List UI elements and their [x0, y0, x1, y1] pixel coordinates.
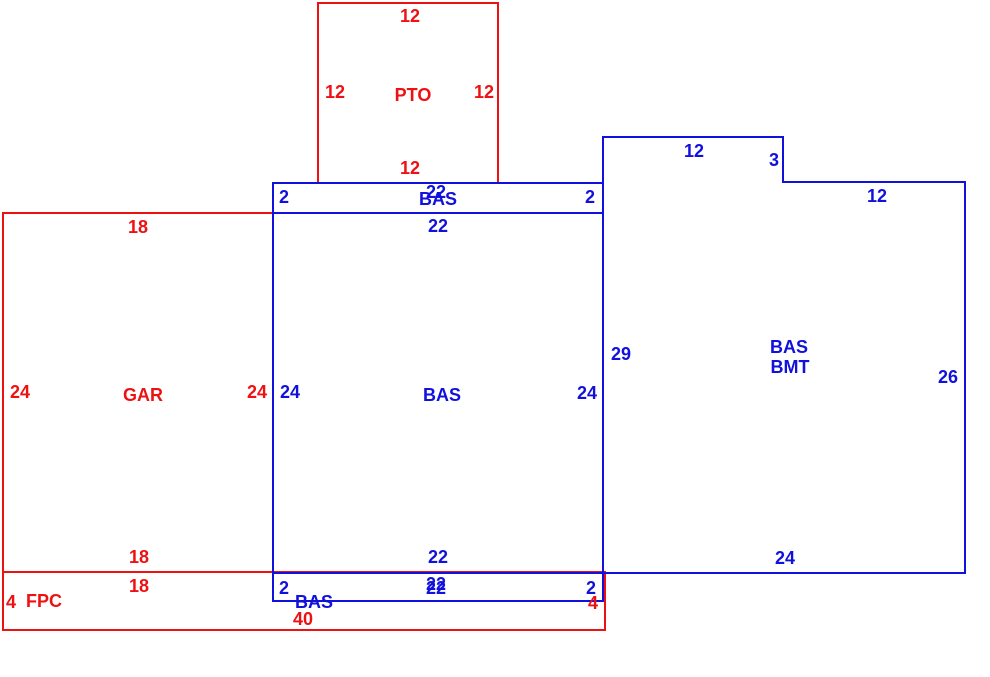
- dim-fpc-top-18: 18: [129, 577, 149, 595]
- dim-gar-top-18: 18: [128, 218, 148, 236]
- dim-pto-right-12: 12: [474, 83, 494, 101]
- dim-bmt-step-3: 3: [769, 151, 779, 169]
- dim-fpc-left-4: 4: [6, 593, 16, 611]
- dim-bmt-left-29: 29: [611, 345, 631, 363]
- dim-pto-bottom-12: 12: [400, 159, 420, 177]
- dim-strip-top-right-2: 2: [585, 188, 595, 206]
- dim-strip-bottom-left-2: 2: [279, 579, 289, 597]
- area-strip-bottom-bas: BAS: [295, 593, 333, 611]
- dim-bas-top-22: 22: [428, 217, 448, 235]
- dim-fpc-bottom-40: 40: [293, 610, 313, 628]
- dim-bmt-bottom-24: 24: [775, 549, 795, 567]
- dim-gar-left-24: 24: [10, 383, 30, 401]
- dim-gar-bottom-18: 18: [129, 548, 149, 566]
- dim-bas-bottom-22: 22: [428, 548, 448, 566]
- dim-gar-right-24: 24: [247, 383, 267, 401]
- dim-strip-top-left-2: 2: [279, 188, 289, 206]
- dim-pto-left-12: 12: [325, 83, 345, 101]
- dim-strip-bottom-right-2: 2: [586, 579, 596, 597]
- floor-plan-sketch: 1212PTO12121824GAR2418184FPC404222BAS222…: [0, 0, 990, 677]
- dim-bmt-top-12: 12: [684, 142, 704, 160]
- area-bmt-bmt-label: BMT: [771, 358, 810, 376]
- dim-bmt-right-26: 26: [938, 368, 958, 386]
- dim-bas-right-24: 24: [577, 384, 597, 402]
- dim-pto-top-12: 12: [400, 7, 420, 25]
- area-strip-top-bas: BAS: [419, 190, 457, 208]
- area-bas-label: BAS: [423, 386, 461, 404]
- dim-bmt-top2-12: 12: [867, 187, 887, 205]
- dim-bas-left-24: 24: [280, 383, 300, 401]
- area-bmt-bas-label: BAS: [770, 338, 808, 356]
- area-fpc-label: FPC: [26, 592, 62, 610]
- area-pto-label: PTO: [395, 86, 432, 104]
- area-gar-label: GAR: [123, 386, 163, 404]
- dim-strip-bottom-22b: 22: [426, 579, 446, 597]
